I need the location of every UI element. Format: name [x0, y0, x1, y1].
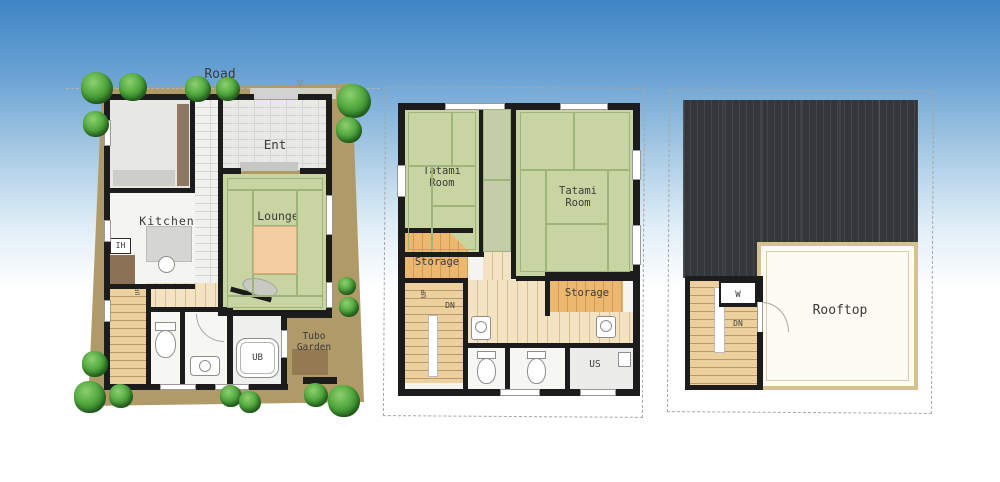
window — [632, 225, 641, 265]
window — [500, 389, 540, 396]
tatami-mat — [432, 166, 476, 206]
washbasin-2f-right-bowl — [600, 320, 612, 332]
wall — [146, 289, 151, 384]
room-northwest-counter — [113, 170, 175, 186]
kitchen-sink — [158, 256, 175, 273]
washbasin-2f-left-bowl — [475, 321, 487, 333]
wall — [466, 343, 634, 348]
tatami-mat — [520, 170, 546, 272]
entrance-label: Ent — [258, 138, 292, 152]
wall — [545, 271, 550, 316]
tatami-mat — [253, 190, 297, 226]
wall — [405, 252, 479, 257]
stairs-2f-dn-label: DN — [440, 302, 460, 311]
hall-2f-landing — [483, 252, 511, 280]
window — [560, 103, 608, 110]
wall — [398, 103, 405, 395]
lounge-center-mat — [253, 226, 297, 274]
window — [326, 195, 333, 235]
washbasin-1f-bowl — [199, 360, 211, 372]
wall — [463, 283, 468, 389]
room-northwest-closet — [177, 104, 189, 186]
stairs-2f-rail-void — [428, 315, 438, 377]
toilet-2f-right-tank — [527, 351, 546, 359]
tree-icon — [304, 383, 328, 407]
tatami-mat — [546, 224, 608, 272]
roof-surface — [683, 100, 918, 242]
tatami-mat — [608, 170, 630, 272]
tatami-mat — [574, 112, 630, 170]
entrance-step — [240, 162, 298, 171]
tree-icon — [185, 76, 211, 102]
stairs-1f — [110, 289, 146, 384]
tatami-mat — [408, 166, 432, 250]
tatami-mat — [227, 178, 323, 190]
tree-icon — [328, 385, 360, 417]
toilet-1f — [155, 330, 176, 358]
rooftop-label: Rooftop — [798, 304, 882, 319]
window — [104, 220, 111, 242]
wall — [180, 312, 185, 384]
tree-icon — [82, 351, 108, 377]
wall — [757, 332, 763, 390]
wall — [685, 276, 690, 390]
roof-surface-west — [683, 242, 757, 278]
kitchen-counter-side — [110, 255, 135, 285]
tree-icon — [339, 297, 359, 317]
wall — [505, 348, 510, 389]
bathtub: UB — [236, 338, 279, 378]
tatami-mat — [483, 180, 511, 252]
wall — [565, 348, 570, 389]
tree-icon — [83, 111, 109, 137]
tree-icon — [74, 381, 106, 413]
tatami-mat — [452, 112, 476, 166]
tatami-mat — [408, 112, 452, 166]
tree-icon — [81, 72, 113, 104]
tatami-mat — [227, 296, 323, 308]
wall — [223, 168, 241, 174]
tatami-mat — [483, 109, 511, 180]
wall — [685, 276, 763, 281]
toilet-2f-left-tank — [477, 351, 496, 359]
tree-icon — [239, 391, 261, 413]
wall — [218, 100, 223, 312]
storage-left-label: Storage — [408, 257, 466, 269]
window — [580, 389, 616, 396]
wall — [719, 303, 757, 307]
ih-stove: IH — [110, 238, 131, 254]
tatami-mat — [432, 206, 476, 250]
wall — [405, 278, 468, 283]
window — [104, 300, 111, 322]
window — [397, 165, 406, 197]
floor-plans-canvas: Road ▽ Ent Kitchen IH Lounge UP UB Tubo … — [0, 0, 1000, 482]
wall — [300, 168, 326, 174]
wall — [516, 276, 633, 281]
window — [281, 330, 288, 358]
wall — [190, 100, 195, 193]
tatami-mat — [520, 112, 574, 170]
tatami-mat — [253, 274, 297, 296]
tatami-mat — [297, 190, 323, 296]
stairs-3f-dn-label: DN — [728, 320, 748, 329]
tatami-mat — [546, 170, 608, 224]
stairs-2f-up-label: UP — [421, 286, 429, 302]
tree-icon — [216, 77, 240, 101]
wall — [218, 310, 332, 316]
utility-space-label: US — [581, 360, 609, 371]
tree-icon — [336, 117, 362, 143]
corridor-floor — [195, 100, 218, 285]
wall — [110, 284, 195, 289]
window — [632, 150, 641, 180]
toilet-2f-left — [477, 358, 496, 384]
wall — [151, 307, 233, 312]
wall — [685, 385, 763, 390]
wall — [511, 109, 516, 279]
tree-icon — [119, 73, 147, 101]
tubo-garden-label: Tubo Garden — [286, 332, 342, 353]
entrance-hall-floor — [223, 100, 326, 170]
tree-icon — [337, 84, 371, 118]
toilet-2f-right — [527, 358, 546, 384]
window — [160, 384, 196, 390]
toilet-1f-tank — [155, 322, 176, 331]
window — [326, 282, 333, 308]
wall — [104, 384, 288, 390]
wall — [227, 312, 233, 384]
rooftop-door-opening — [757, 300, 763, 334]
wall — [757, 276, 763, 302]
tree-icon — [338, 277, 356, 295]
tree-icon — [109, 384, 133, 408]
storage-right-label: Storage — [558, 288, 616, 300]
utility-box — [618, 352, 631, 367]
hall-2f-east — [550, 312, 633, 343]
tatami-mat — [227, 190, 253, 296]
porch-opening — [252, 88, 300, 99]
wall — [110, 188, 195, 193]
